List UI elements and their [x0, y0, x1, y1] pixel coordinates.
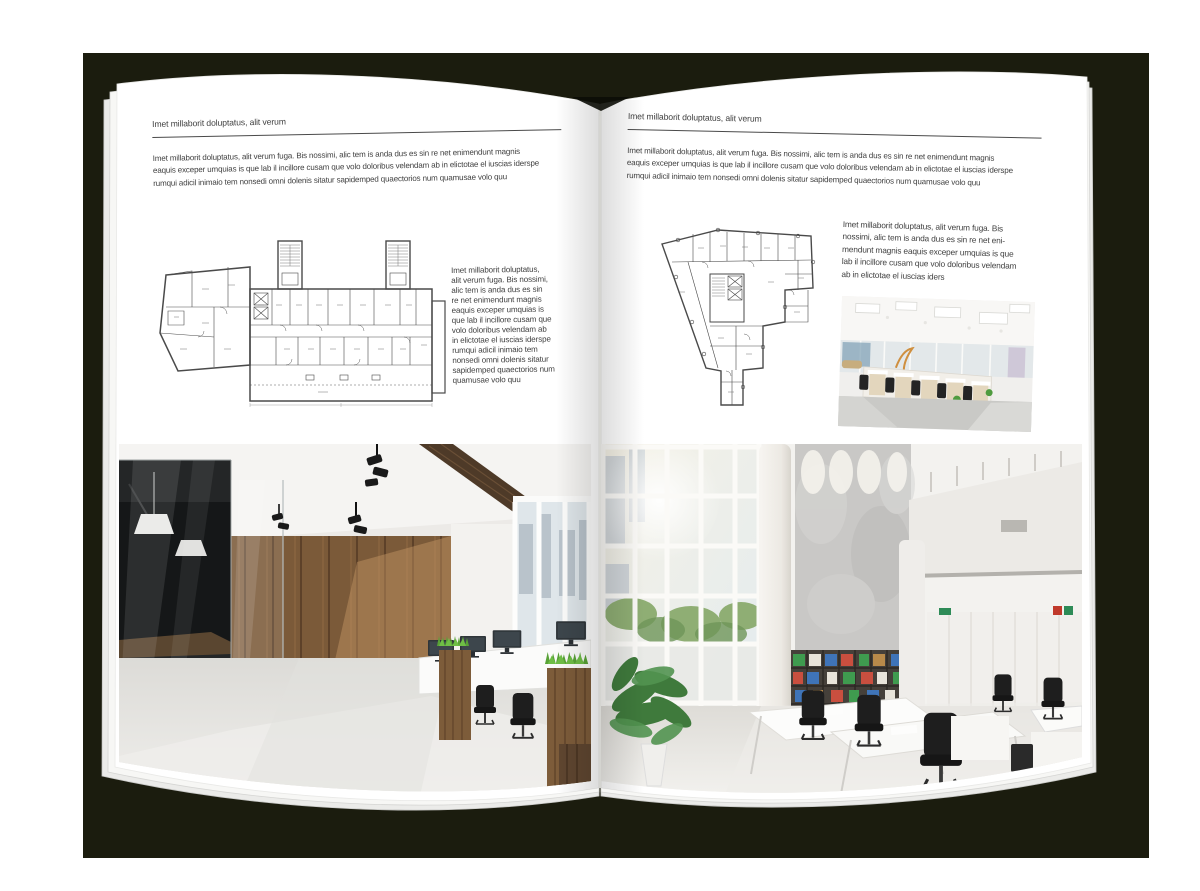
right-header-rule — [628, 129, 1042, 139]
left-page-photo — [119, 444, 591, 800]
right-page-side-text: Imet millaborit doluptatus, alit verum f… — [841, 218, 1017, 285]
right-page-photo — [597, 438, 1082, 804]
left-header-rule — [152, 129, 561, 138]
right-page-intro-block: Imet millaborit doluptatus, alit verum I… — [627, 111, 1042, 191]
left-page-intro-block: Imet millaborit doluptatus, alit verum I… — [152, 111, 562, 190]
side-text-line: quamusae volo quu — [453, 375, 555, 386]
mockup-stage: Imet millaborit doluptatus, alit verum I… — [0, 0, 1200, 891]
spine — [556, 97, 644, 792]
left-page-side-text: Imet millaborit doluptatus, alit verum f… — [451, 265, 555, 386]
right-page-photo-small — [838, 296, 1035, 432]
